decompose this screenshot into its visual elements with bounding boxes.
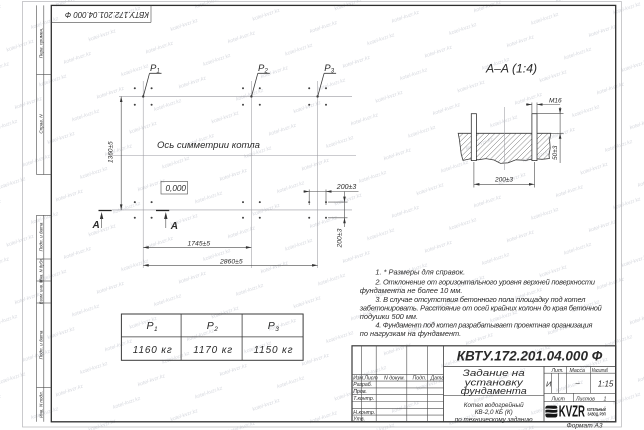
svg-text:1745±5: 1745±5 [188, 240, 211, 247]
svg-text:Подп.: Подп. [413, 376, 427, 382]
svg-text:Подп. и дата: Подп. и дата [39, 330, 44, 359]
svg-text:Т.контр.: Т.контр. [353, 396, 374, 402]
svg-text:P: P [268, 320, 275, 332]
svg-text:1: 1 [154, 326, 158, 333]
svg-text:Формат А3: Формат А3 [567, 423, 603, 430]
svg-text:0,000: 0,000 [166, 184, 187, 193]
svg-text:1360±5: 1360±5 [108, 141, 115, 163]
svg-text:Перв. примен.: Перв. примен. [39, 28, 44, 59]
svg-text:3: 3 [275, 326, 279, 333]
svg-text:Инв. N подл.: Инв. N подл. [39, 391, 44, 418]
svg-text:Подп. и дата: Подп. и дата [39, 222, 44, 251]
svg-text:N докум.: N докум. [384, 376, 405, 382]
svg-text:A–A (1:4): A–A (1:4) [485, 62, 537, 76]
svg-text:1:15: 1:15 [598, 379, 614, 388]
svg-text:КВТУ.172.201.04.000 Ф: КВТУ.172.201.04.000 Ф [457, 349, 603, 364]
svg-text:1. * Размеры для справок.: 1. * Размеры для справок. [375, 268, 465, 277]
svg-text:Н.контр.: Н.контр. [353, 410, 375, 416]
svg-text:по техническому заданию: по техническому заданию [455, 415, 533, 423]
svg-text:200±3: 200±3 [494, 177, 513, 184]
svg-text:фундамента не более 10 мм.: фундамента не более 10 мм. [360, 286, 463, 295]
svg-text:A: A [170, 221, 178, 232]
svg-text:Ось симметрии котла: Ось симметрии котла [157, 140, 260, 150]
svg-text:M16: M16 [549, 98, 562, 105]
svg-text:1: 1 [604, 396, 607, 402]
svg-text:–: – [575, 379, 581, 388]
svg-text:1150 кг: 1150 кг [254, 345, 293, 356]
svg-text:P: P [207, 320, 214, 332]
svg-text:Инв. N дубл.: Инв. N дубл. [39, 258, 44, 282]
svg-text:КВТУ.172.201.04.000 Ф: КВТУ.172.201.04.000 Ф [64, 10, 149, 19]
svg-text:Масса: Масса [570, 368, 585, 374]
svg-text:ЗАВОД, РЭП: ЗАВОД, РЭП [588, 412, 606, 417]
svg-text:2: 2 [213, 326, 218, 333]
svg-text:И: И [546, 380, 552, 389]
svg-text:по нагрузкам на фундамент.: по нагрузкам на фундамент. [360, 329, 461, 338]
svg-text:1160 кг: 1160 кг [133, 345, 172, 356]
svg-text:Справ. N: Справ. N [39, 114, 44, 134]
svg-text:фундамента: фундамента [461, 386, 527, 397]
svg-text:200±3: 200±3 [337, 228, 344, 248]
svg-text:Изм.Лист: Изм.Лист [353, 376, 378, 382]
svg-text:Масштаб: Масштаб [592, 368, 609, 374]
svg-text:Лит.: Лит. [551, 368, 564, 374]
svg-text:KVZR: KVZR [559, 402, 586, 420]
svg-text:Дата: Дата [430, 376, 445, 382]
svg-text:P: P [147, 320, 154, 332]
svg-text:КВ-2,0 КБ (К): КВ-2,0 КБ (К) [475, 409, 513, 416]
svg-text:Утв.: Утв. [353, 417, 365, 423]
svg-text:Пров.: Пров. [353, 389, 367, 395]
svg-text:1170 кг: 1170 кг [193, 345, 232, 356]
svg-text:Взам. инв. N: Взам. инв. N [39, 279, 44, 304]
svg-text:Разраб.: Разраб. [353, 382, 372, 388]
svg-text:50±3: 50±3 [552, 145, 559, 160]
svg-text:A: A [92, 220, 100, 231]
svg-text:Котел водогрейный: Котел водогрейный [464, 401, 524, 409]
svg-text:2860±5: 2860±5 [219, 258, 243, 265]
svg-text:200±3: 200±3 [336, 184, 357, 191]
